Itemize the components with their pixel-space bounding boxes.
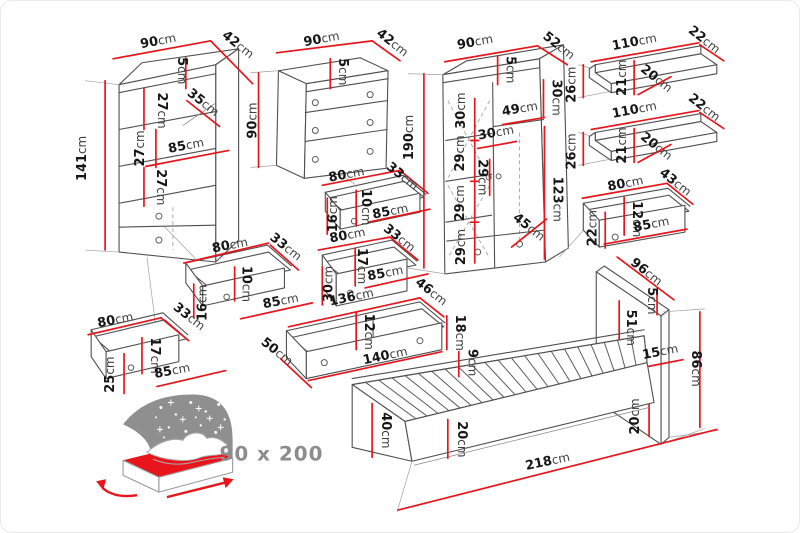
dim-label-wardrobe: 123cm [549,177,564,222]
dim-label-headboard: 51cm [623,310,638,346]
dim-label-wardrobe: 29cm [453,135,468,171]
dresser-drawing [251,41,400,184]
dim-label-bed: 40cm [378,412,393,448]
knob [312,100,318,106]
dim-label-dresser-drawer-upper: 16cm [326,196,341,232]
dim-label-headboard: 96cm [627,255,665,289]
dim-label-wall-shelf-lower: 26cm [564,133,579,169]
dim-label-bed: 20cm [454,421,469,457]
dim-label-bookshelf: 90cm [139,31,177,53]
furniture-dimensions-diagram: 90 x 200 90cm42cm141cm5cm27cm35cm27cm85c… [0,0,800,533]
dim-label-headboard: 86cm [688,351,703,387]
knob [496,174,501,179]
dim-label-dresser: 5cm [335,58,350,85]
dim-label-wall-shelf-upper: 21cm [615,60,630,96]
knob [367,92,373,98]
dim-label-wardrobe: 29cm [453,185,468,221]
dim-label-bookshelf: 27cm [133,130,148,166]
dim-label-dresser: 90cm [246,102,261,138]
knob [367,148,373,154]
dim-label-headboard: 20cm [628,398,643,434]
dim-label-wall-shelf-lower: 21cm [615,127,630,163]
dim-label-bed-drawer: 12cm [361,314,376,350]
dim-label-wardrobe-drawer: 22cm [585,210,600,246]
dim-label-wardrobe: 29cm [475,159,490,195]
knob [475,249,481,255]
dim-label-bookshelf: 141cm [75,136,90,181]
dim-label-wardrobe: 30cm [454,92,469,128]
dim-label-wardrobe: 30cm [548,80,563,116]
knob [312,128,318,134]
dim-label-dresser-drawer-lower: 17cm [354,248,369,284]
dim-label-bed-drawer: 46cm [412,275,450,309]
dim-label-bookshelf-drawer-large: 25cm [103,356,118,392]
knob [417,338,423,344]
dim-label-bookshelf: 27cm [153,169,168,205]
knob [367,120,373,126]
knob [612,234,618,240]
knob [224,294,230,300]
dim-label-bed: 218cm [524,450,571,474]
dim-label-wardrobe-drawer: 80cm [606,173,644,195]
dim-label-wardrobe: 90cm [456,32,494,54]
dim-label-bookshelf-drawer-small: 10cm [239,266,254,302]
knob [156,237,162,243]
dim-label-wardrobe: 29cm [454,229,469,265]
bed-size-caption: 90 x 200 [220,442,324,465]
dim-label-wardrobe: 190cm [402,115,417,160]
dim-label-bookshelf-drawer-small: 85cm [262,291,300,313]
knob [156,213,162,219]
dim-label-bed-drawer: 18cm [452,315,467,351]
dim-label-wall-shelf-upper: 26cm [564,67,579,103]
mattress-illustration: 90 x 200 [96,395,323,498]
knob [312,156,318,162]
knob [321,360,327,366]
knob [128,365,134,371]
dim-label-bookshelf: 27cm [154,92,169,128]
dim-label-wardrobe: 5cm [503,56,518,83]
dim-label-headboard: 5cm [644,287,659,314]
dim-label-dresser: 90cm [302,29,340,51]
dim-label-bed: 9cm [465,349,480,376]
dim-label-bookshelf: 5cm [174,57,189,84]
